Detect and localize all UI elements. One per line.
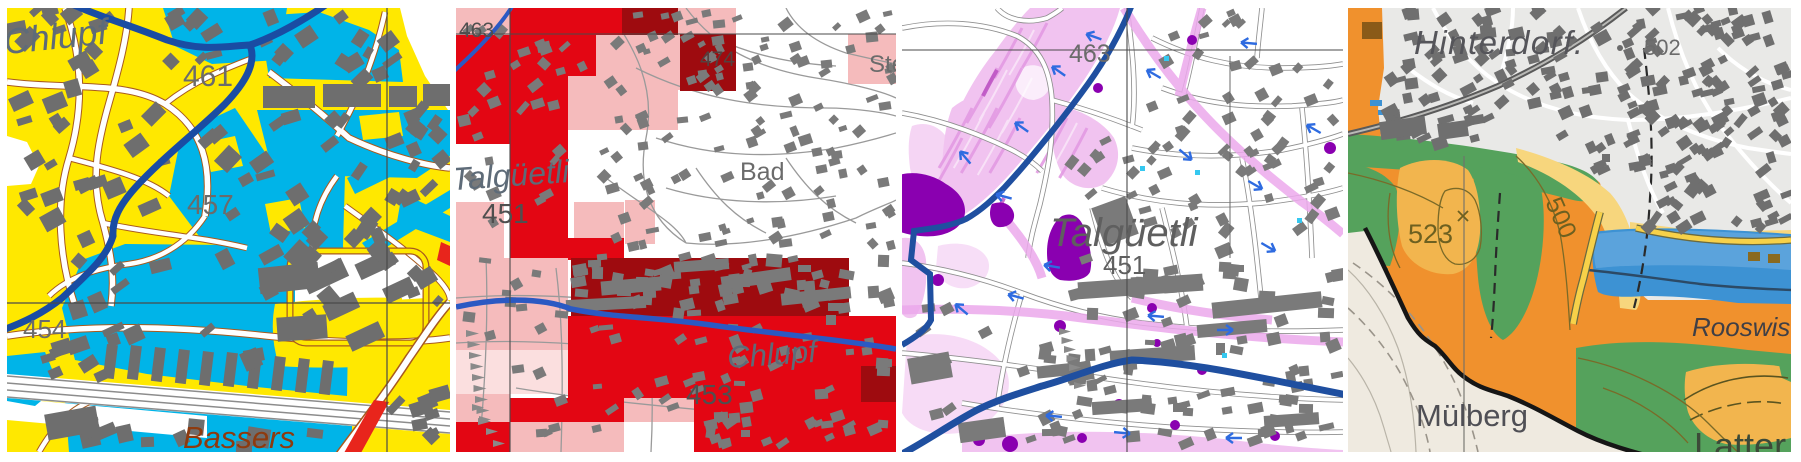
svg-text:Hinterdorf.: Hinterdorf. (1414, 24, 1585, 61)
svg-text:502: 502 (1644, 35, 1681, 60)
svg-text:463: 463 (1069, 40, 1111, 68)
svg-text:454: 454 (23, 314, 66, 344)
svg-text:453: 453 (686, 379, 733, 410)
svg-text:Latter: Latter (1694, 425, 1786, 452)
svg-text:Bassers: Bassers (183, 420, 295, 452)
svg-text:457: 457 (187, 189, 234, 220)
svg-text:Bad: Bad (740, 158, 784, 186)
svg-text:Mülberg: Mülberg (1416, 398, 1528, 433)
svg-text:461: 461 (183, 60, 233, 93)
svg-text:Ste: Ste (869, 51, 896, 78)
svg-text:451: 451 (482, 198, 529, 229)
svg-text:Rooswis: Rooswis (1692, 312, 1790, 342)
svg-text:523: 523 (1408, 219, 1453, 249)
svg-text:Chlupf: Chlupf (726, 334, 821, 375)
svg-text:Talgüetli: Talgüetli (1050, 211, 1199, 255)
svg-text:451: 451 (1103, 250, 1146, 280)
svg-text:474: 474 (700, 48, 735, 71)
svg-text:463: 463 (459, 19, 494, 42)
